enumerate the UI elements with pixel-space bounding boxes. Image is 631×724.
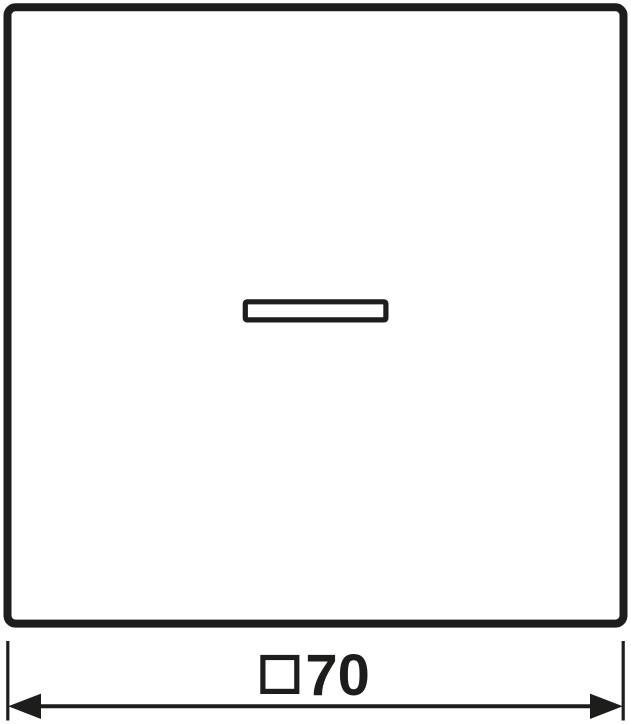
- svg-text:70: 70: [305, 643, 370, 708]
